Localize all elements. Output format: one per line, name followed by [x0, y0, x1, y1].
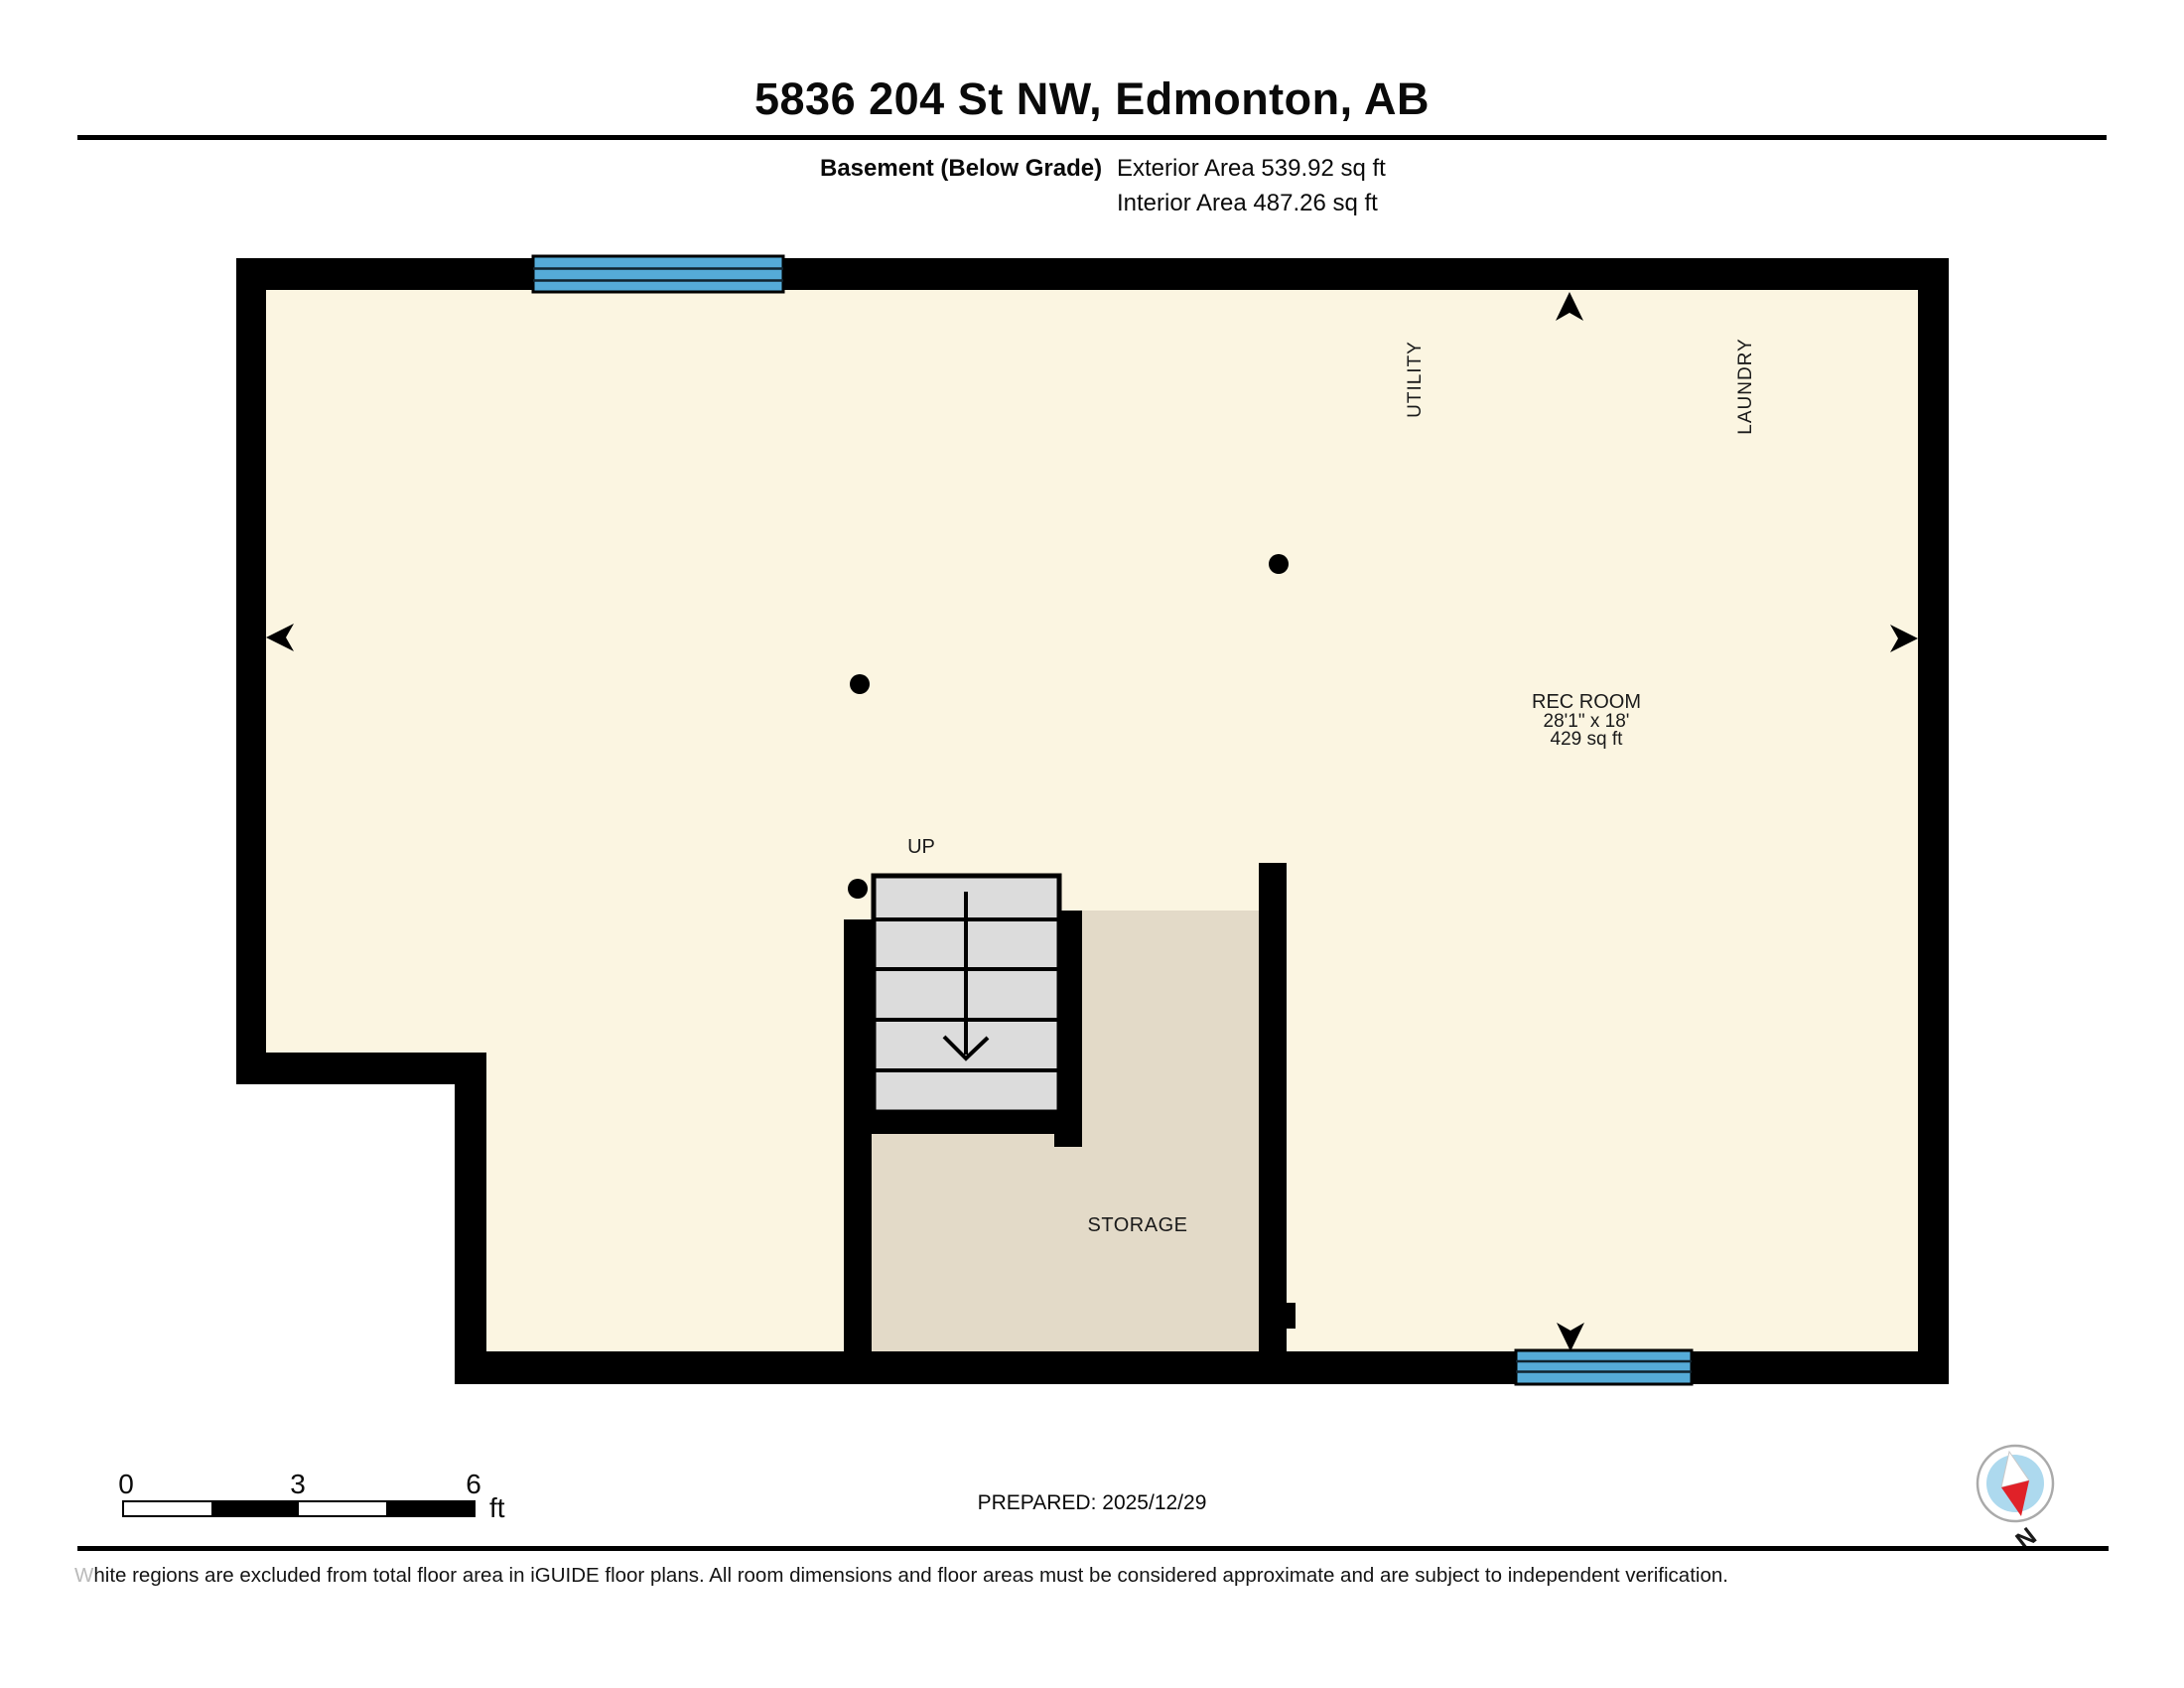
- footer-divider-line: [77, 1546, 2109, 1551]
- scale-tick-3: 3: [290, 1469, 306, 1500]
- top-window: [533, 256, 783, 292]
- disclaimer-text: White regions are excluded from total fl…: [74, 1564, 1728, 1588]
- laundry-room-label: LAUNDRY: [1735, 338, 1756, 434]
- floorplan-drawing: UP UTILITY LAUNDRY REC ROOM 28'1" x 18' …: [0, 0, 2184, 1688]
- rec-room-area: 429 sq ft: [1551, 729, 1624, 750]
- column-dot: [1269, 554, 1289, 574]
- rec-room-name: REC ROOM: [1532, 691, 1641, 713]
- stair-left-wall: [844, 919, 872, 1351]
- scale-segment: [211, 1502, 299, 1515]
- scale-segment: [386, 1502, 474, 1515]
- stair-bottom-wall: [872, 1112, 1082, 1134]
- scale-segment: [124, 1502, 211, 1515]
- scale-tick-0: 0: [118, 1469, 134, 1500]
- storage-door-jamb: [1287, 1303, 1296, 1329]
- compass: N: [1978, 1446, 2053, 1555]
- storage-room-label: STORAGE: [1088, 1214, 1188, 1236]
- scale-segment: [299, 1502, 386, 1515]
- staircase: [874, 876, 1059, 1112]
- bottom-window: [1516, 1350, 1692, 1384]
- scale-tick-6: 6: [466, 1469, 481, 1500]
- column-dot: [848, 879, 868, 899]
- prepared-date: PREPARED: 2025/12/29: [978, 1491, 1207, 1515]
- scale-bar: [122, 1500, 476, 1517]
- scale-unit-label: ft: [489, 1492, 505, 1524]
- stairs-up-label: UP: [907, 836, 935, 858]
- utility-room-label: UTILITY: [1405, 341, 1426, 418]
- column-dot: [850, 674, 870, 694]
- floorplan-page: 5836 204 St NW, Edmonton, AB Basement (B…: [0, 0, 2184, 1688]
- storage-right-wall: [1259, 863, 1287, 1351]
